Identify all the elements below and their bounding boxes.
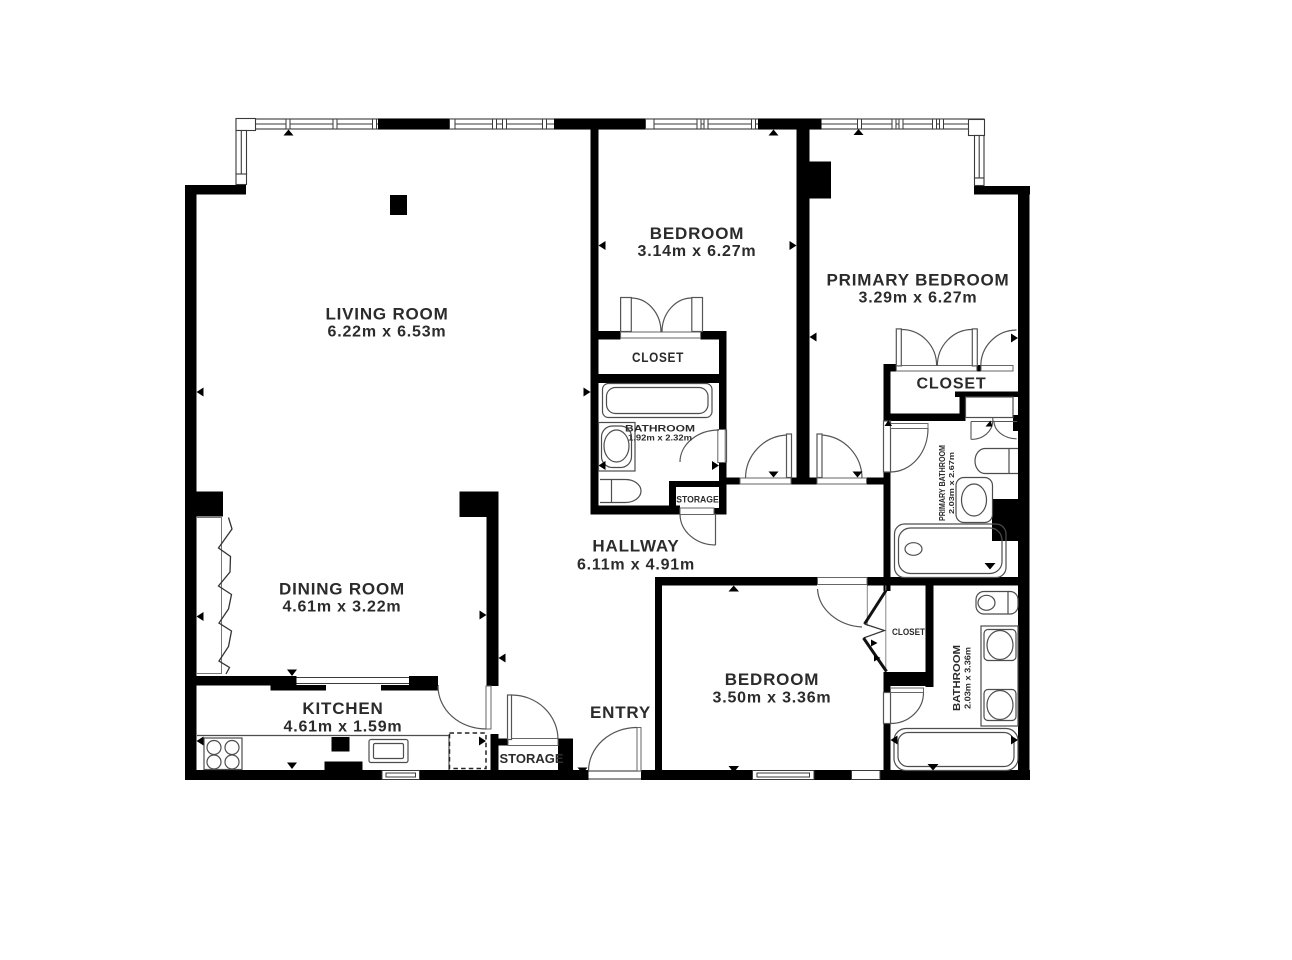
svg-text:3.14m x 6.27m: 3.14m x 6.27m xyxy=(638,243,757,260)
svg-text:HALLWAY: HALLWAY xyxy=(592,537,679,556)
svg-text:2.03m x 3.36m: 2.03m x 3.36m xyxy=(963,647,973,709)
svg-text:ENTRY: ENTRY xyxy=(590,703,651,722)
svg-text:CLOSET: CLOSET xyxy=(917,376,987,393)
svg-text:4.61m x 3.22m: 4.61m x 3.22m xyxy=(283,599,402,616)
svg-text:1.92m x 2.32m: 1.92m x 2.32m xyxy=(628,433,692,443)
svg-text:6.11m x 4.91m: 6.11m x 4.91m xyxy=(577,557,695,574)
svg-text:2.03m x 2.67m: 2.03m x 2.67m xyxy=(947,452,956,514)
svg-text:DINING ROOM: DINING ROOM xyxy=(279,580,405,599)
svg-text:PRIMARY BATHROOM: PRIMARY BATHROOM xyxy=(937,445,947,521)
svg-text:4.61m x 1.59m: 4.61m x 1.59m xyxy=(284,719,403,736)
svg-text:CLOSET: CLOSET xyxy=(632,350,684,365)
svg-text:BEDROOM: BEDROOM xyxy=(650,224,744,243)
svg-text:LIVING ROOM: LIVING ROOM xyxy=(325,305,448,324)
svg-text:3.29m x 6.27m: 3.29m x 6.27m xyxy=(859,290,978,307)
svg-text:BEDROOM: BEDROOM xyxy=(725,670,819,689)
svg-text:BATHROOM: BATHROOM xyxy=(951,645,963,711)
svg-text:STORAGE: STORAGE xyxy=(500,752,564,766)
svg-text:PRIMARY BEDROOM: PRIMARY BEDROOM xyxy=(827,271,1010,290)
svg-text:KITCHEN: KITCHEN xyxy=(302,699,383,718)
svg-text:3.50m x 3.36m: 3.50m x 3.36m xyxy=(713,690,832,707)
svg-text:STORAGE: STORAGE xyxy=(676,495,719,505)
svg-text:CLOSET: CLOSET xyxy=(892,627,925,637)
svg-text:6.22m x 6.53m: 6.22m x 6.53m xyxy=(328,324,447,341)
